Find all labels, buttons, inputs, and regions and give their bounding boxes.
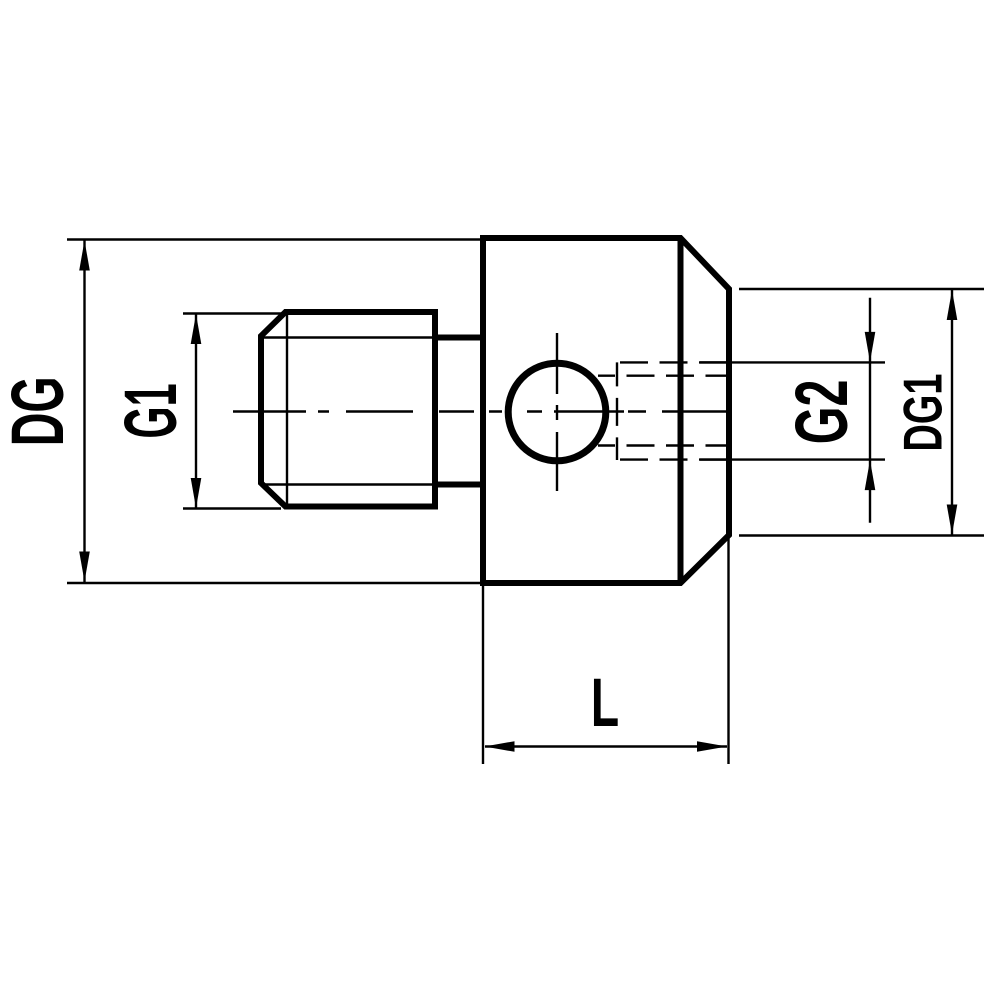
svg-text:DG1: DG1 <box>893 373 955 451</box>
svg-text:G1: G1 <box>109 383 192 438</box>
svg-text:L: L <box>591 665 619 741</box>
svg-text:G2: G2 <box>781 380 864 445</box>
svg-text:DG: DG <box>0 376 80 446</box>
